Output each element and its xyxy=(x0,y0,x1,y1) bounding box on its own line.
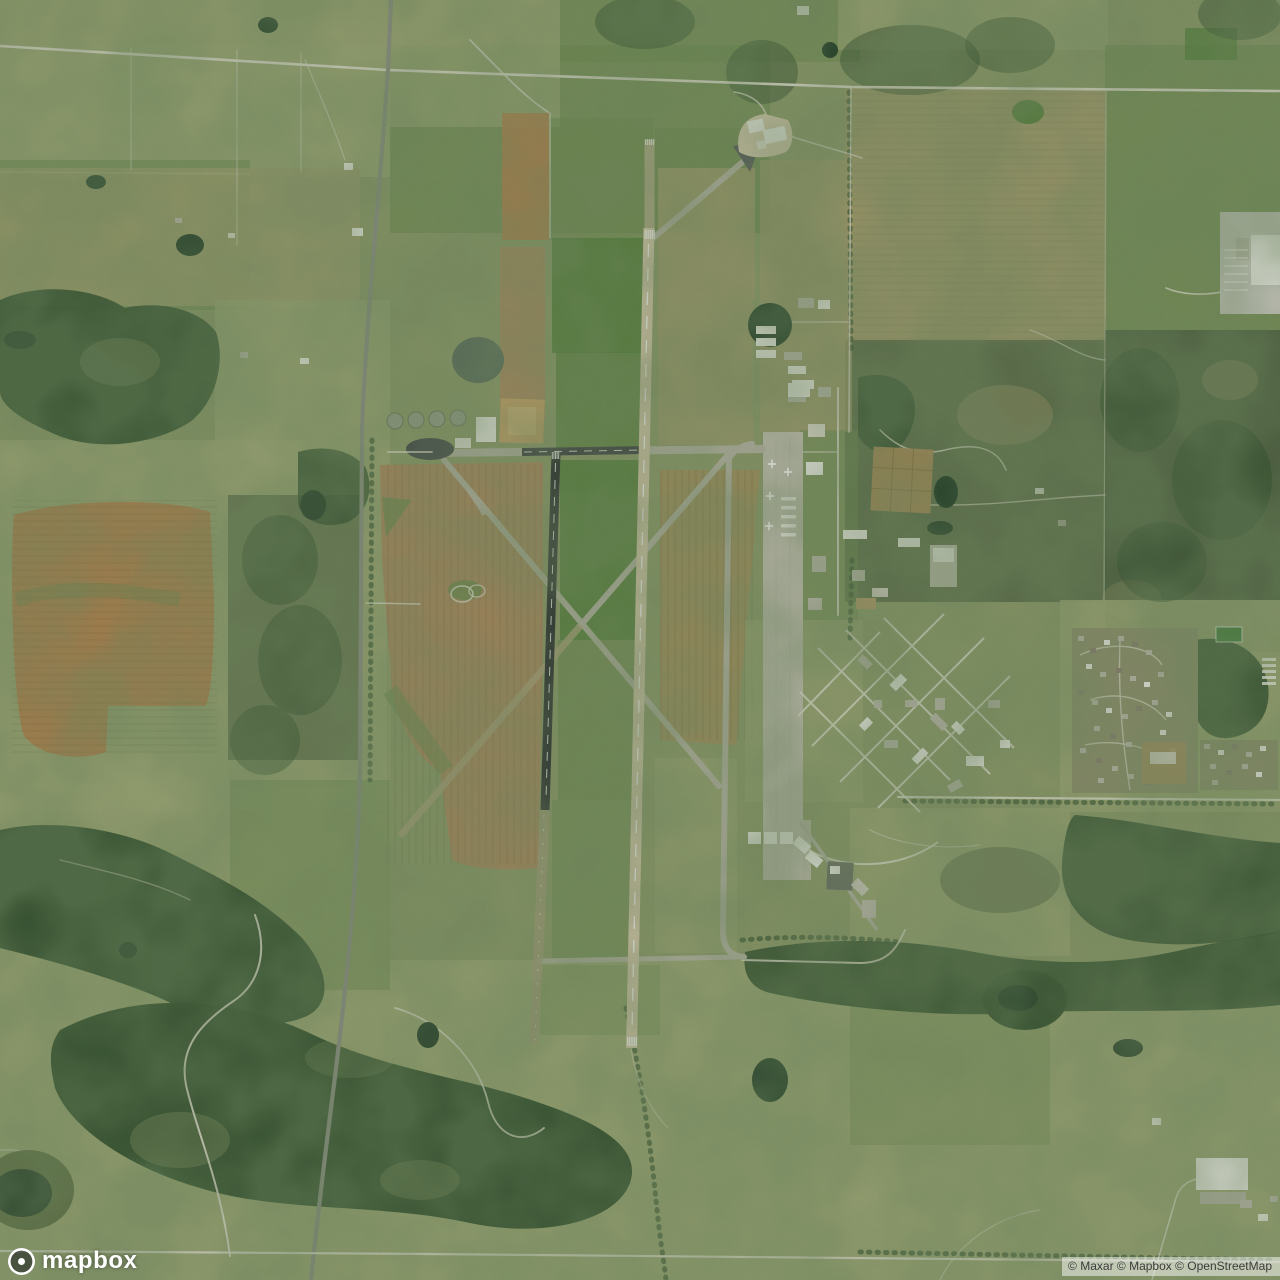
factory-complex xyxy=(1220,212,1280,314)
boneyard xyxy=(870,446,933,513)
attribution-text: © Maxar © Mapbox © OpenStreetMap xyxy=(1068,1259,1272,1273)
mapbox-logo-icon xyxy=(8,1248,35,1275)
attribution-bar[interactable]: © Maxar © Mapbox © OpenStreetMap xyxy=(1062,1257,1280,1276)
satellite-canvas xyxy=(0,0,1280,1280)
mapbox-logo[interactable]: mapbox xyxy=(8,1247,138,1275)
mapbox-logo-text: mapbox xyxy=(42,1247,138,1275)
map-viewport[interactable]: mapbox © Maxar © Mapbox © OpenStreetMap xyxy=(0,0,1280,1280)
